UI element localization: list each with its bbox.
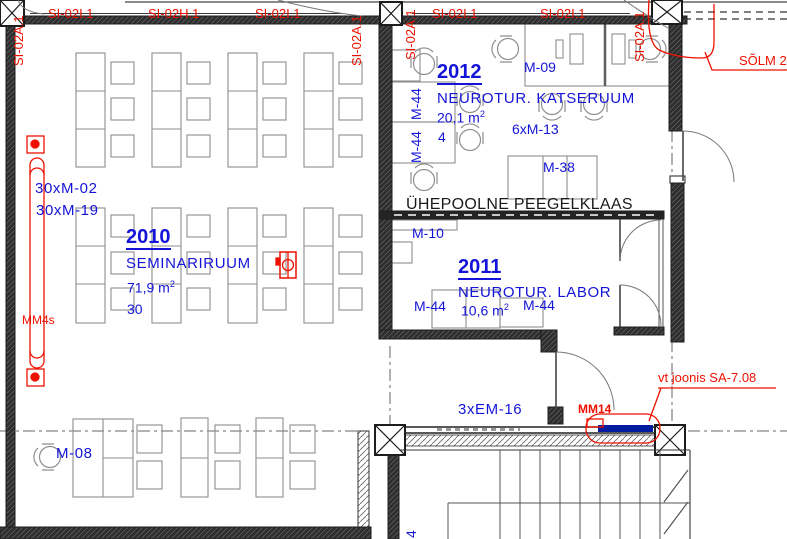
grid-label-vert-1: SI-02A.1 bbox=[12, 15, 25, 66]
room-2010-number: 2010 bbox=[126, 227, 171, 250]
solm-label: SÕLM 2 bbox=[739, 54, 787, 67]
grid-label-vert-2: SI-02A.1 bbox=[350, 15, 363, 66]
columns bbox=[0, 0, 685, 455]
chair-icon bbox=[457, 124, 483, 151]
grid-label-vert-3: SI-02A.1 bbox=[404, 9, 417, 60]
mm14-element bbox=[598, 425, 653, 432]
room-2012-capacity: 4 bbox=[438, 130, 446, 144]
room-2010-area: 71,9 m2 bbox=[127, 280, 175, 295]
chair-icon bbox=[411, 164, 437, 191]
m08-label: M-08 bbox=[56, 446, 93, 461]
floor-plan: SI-02I.1 SI-02H.1 SI-02I.1 SI-02I.1 SI-0… bbox=[0, 0, 787, 539]
room-2012-number: 2012 bbox=[437, 62, 482, 85]
stair-vert-label: 4 bbox=[404, 530, 418, 538]
grid-label-top-3: SI-02I.1 bbox=[255, 7, 301, 20]
m10-label: M-10 bbox=[412, 226, 444, 240]
m09-label: M-09 bbox=[524, 60, 556, 74]
grid-label-vert-4: SI-02A.1 bbox=[633, 11, 646, 62]
m44-vert-label-a: M-44 bbox=[409, 131, 423, 163]
room-2010-name: SEMINARIRUUM bbox=[126, 256, 251, 271]
vt-joonis-leader-line bbox=[649, 388, 776, 421]
mirror-glass-note: ÜHEPOOLNE PEEGELKLAAS bbox=[406, 197, 633, 213]
mm4s-label: MM4s bbox=[22, 314, 55, 326]
qty-m19-label: 30xM-19 bbox=[36, 203, 99, 218]
m38-label: M-38 bbox=[543, 160, 575, 174]
mm4s-symbol bbox=[27, 136, 44, 386]
mm14-label: MM14 bbox=[578, 403, 611, 415]
centerlines bbox=[0, 130, 787, 431]
grid-label-top-2: SI-02H.1 bbox=[148, 7, 199, 20]
m44-right-label: M-44 bbox=[523, 298, 555, 312]
room-2010-capacity: 30 bbox=[127, 302, 143, 316]
room-2011-number: 2011 bbox=[458, 257, 501, 280]
grid-label-top-4: SI-02I.1 bbox=[432, 7, 478, 20]
furniture-katseruum bbox=[392, 18, 670, 199]
m44-left-label: M-44 bbox=[414, 299, 446, 313]
plan-linework bbox=[0, 0, 787, 539]
room-2012-name: NEUROTUR. KATSERUUM bbox=[437, 91, 635, 106]
staircase bbox=[399, 450, 690, 539]
qty-m02-label: 30xM-02 bbox=[35, 181, 98, 196]
chair-icon bbox=[492, 36, 519, 62]
vt-joonis-label: vt joonis SA-7.08 bbox=[658, 371, 756, 384]
room-2011-area: 10,6 m2 bbox=[461, 303, 509, 318]
qty-m13-label: 6xM-13 bbox=[512, 122, 559, 136]
furniture-seminar-desks bbox=[76, 53, 362, 323]
m44-vert-label-b: M-44 bbox=[409, 88, 423, 120]
grid-label-top-1: SI-02I.1 bbox=[48, 7, 94, 20]
room-2012-area: 20,1 m2 bbox=[437, 110, 485, 125]
qty-em16-label: 3xEM-16 bbox=[458, 402, 522, 417]
grid-label-top-5: SI-02I.1 bbox=[540, 7, 586, 20]
